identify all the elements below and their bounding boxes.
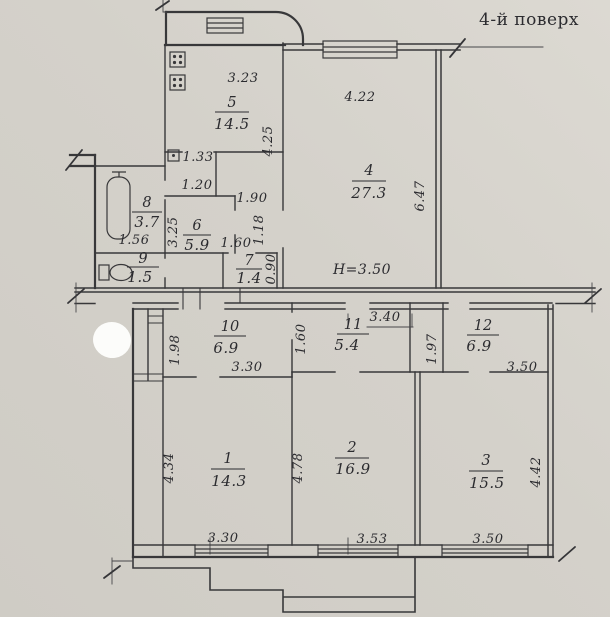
- dim-3-50-room12: 3.50: [507, 360, 538, 375]
- dim-3-30-room1: 3.30: [208, 531, 239, 546]
- room-5-number: 5: [227, 95, 236, 111]
- room-1-number: 1: [223, 451, 232, 467]
- dim-1-98: 1.98: [168, 335, 183, 366]
- dim-1-33: 1.33: [183, 150, 214, 165]
- room-8-number: 8: [142, 195, 151, 211]
- room-2-area: 16.9: [335, 460, 370, 478]
- dim-0-90: 0.90: [264, 254, 279, 285]
- room-4-number: 4: [363, 163, 373, 179]
- room-8-area: 3.7: [134, 213, 159, 231]
- room-11-number: 11: [344, 317, 362, 333]
- dim-1-18: 1.18: [252, 215, 267, 246]
- dim-3-50-room3: 3.50: [473, 532, 504, 547]
- room-9-number: 9: [138, 251, 147, 267]
- dim-1-90: 1.90: [237, 191, 268, 206]
- dim-3-40: 3.40: [370, 310, 401, 325]
- dim-3-25: 3.25: [166, 217, 181, 248]
- dim-1-60-room10: 1.60: [294, 324, 309, 355]
- room-6-number: 6: [192, 218, 201, 234]
- dim-3-53-room2: 3.53: [357, 532, 388, 547]
- ceiling-height-note: H=3.50: [332, 262, 391, 278]
- dim-4-25: 4.25: [261, 126, 276, 158]
- floor-plan-page: 4-й поверх H=3.50 5 14.5 4 27.3 8 3.7 6 …: [0, 0, 610, 617]
- room-9-area: 1.5: [127, 268, 152, 286]
- room-10-number: 10: [221, 319, 239, 335]
- room-3-number: 3: [481, 453, 490, 469]
- dim-4-78: 4.78: [291, 453, 306, 485]
- room-6-area: 5.9: [184, 236, 209, 254]
- room-10-area: 6.9: [213, 339, 238, 357]
- room-2-number: 2: [346, 440, 356, 456]
- dim-1-60-hall: 1.60: [221, 236, 252, 251]
- dim-1-56: 1.56: [119, 233, 150, 248]
- dim-1-97: 1.97: [425, 333, 440, 364]
- room-1-area: 14.3: [211, 472, 246, 490]
- room-11-area: 5.4: [334, 336, 359, 354]
- room-7-area: 1.4: [236, 269, 261, 287]
- dim-6-47: 6.47: [413, 180, 428, 211]
- room-12-number: 12: [474, 318, 492, 334]
- dim-4-34: 4.34: [162, 453, 177, 485]
- room-3-area: 15.5: [469, 474, 504, 492]
- room-5-area: 14.5: [214, 115, 249, 133]
- dim-3-23: 3.23: [228, 71, 259, 86]
- dim-4-22: 4.22: [344, 90, 376, 105]
- room-12-area: 6.9: [466, 337, 491, 355]
- page-title: 4-й поверх: [479, 10, 579, 30]
- floor-plan-drawing: 4-й поверх H=3.50 5 14.5 4 27.3 8 3.7 6 …: [0, 0, 610, 617]
- dim-1-20: 1.20: [182, 178, 213, 193]
- dim-3-30-room10: 3.30: [232, 360, 263, 375]
- dim-4-42: 4.42: [529, 457, 544, 489]
- room-4-area: 27.3: [350, 184, 386, 202]
- room-7-number: 7: [244, 253, 254, 269]
